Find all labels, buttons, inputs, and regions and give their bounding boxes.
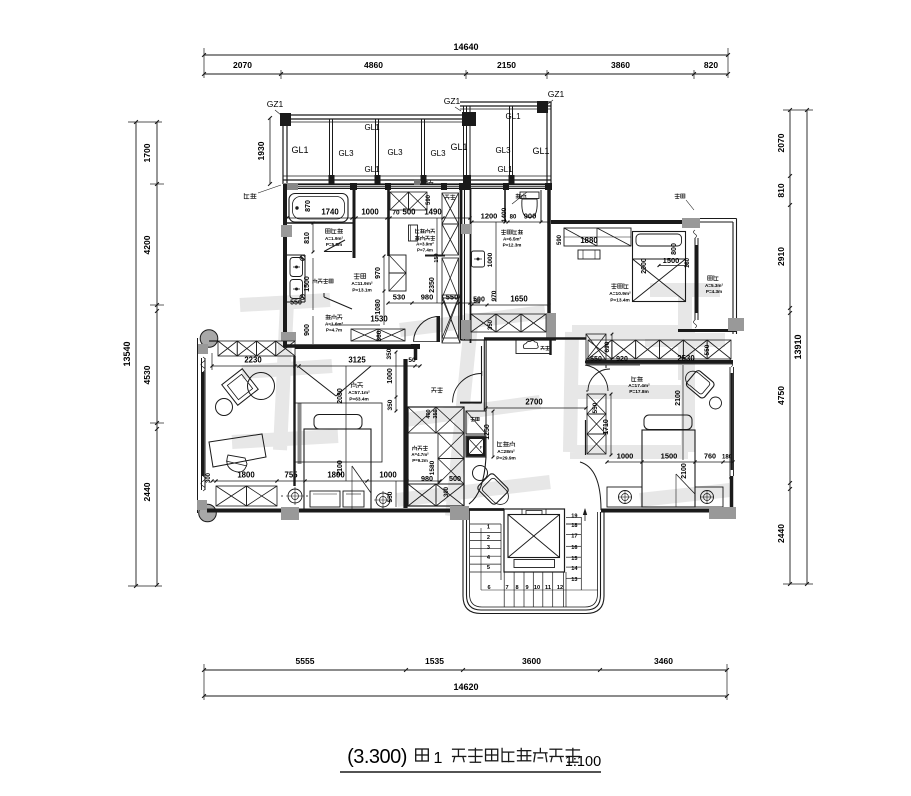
svg-text:1200: 1200 [481, 212, 498, 221]
svg-text:P=29.9m: P=29.9m [496, 456, 516, 462]
svg-text:17: 17 [571, 534, 577, 540]
svg-text:A=1.9m²: A=1.9m² [325, 236, 343, 241]
svg-text:GL1: GL1 [450, 142, 467, 152]
svg-text:2070: 2070 [776, 133, 786, 152]
svg-text:590: 590 [426, 194, 432, 205]
svg-text:19: 19 [571, 514, 577, 520]
svg-text:2350: 2350 [429, 277, 436, 293]
svg-text:14: 14 [571, 566, 578, 572]
svg-text:P=9.2m: P=9.2m [412, 458, 428, 463]
svg-text:2080: 2080 [337, 388, 344, 404]
svg-text:A=57.1m²: A=57.1m² [348, 390, 370, 396]
svg-text:GL3: GL3 [387, 148, 403, 157]
svg-text:4750: 4750 [776, 386, 786, 405]
svg-text:1530: 1530 [370, 315, 388, 324]
svg-text:2440: 2440 [142, 482, 152, 501]
svg-text:550: 550 [590, 356, 602, 363]
svg-text:A=28m²: A=28m² [497, 449, 515, 455]
svg-text:GL1: GL1 [291, 145, 308, 155]
svg-text:1000: 1000 [617, 452, 634, 461]
svg-text:1535: 1535 [425, 656, 444, 666]
svg-text:16: 16 [571, 545, 577, 551]
svg-text:P=13.4m: P=13.4m [610, 298, 630, 304]
svg-text:3125: 3125 [348, 356, 366, 365]
svg-text:2: 2 [487, 535, 490, 541]
svg-text:50: 50 [408, 357, 416, 364]
svg-text:180: 180 [685, 257, 691, 268]
svg-text:A=3.9m²: A=3.9m² [416, 242, 434, 247]
svg-text:A=1.6m²: A=1.6m² [325, 322, 343, 327]
svg-text:3860: 3860 [611, 60, 630, 70]
svg-text:GL3: GL3 [430, 149, 446, 158]
svg-text:GL3: GL3 [495, 146, 511, 155]
svg-text:8: 8 [515, 585, 518, 591]
svg-text:(3.300): (3.300) [347, 746, 407, 768]
svg-text:1:100: 1:100 [565, 754, 601, 770]
svg-text:760: 760 [704, 452, 716, 461]
svg-text:5: 5 [487, 565, 490, 571]
svg-text:1080: 1080 [375, 299, 382, 315]
svg-text:810: 810 [776, 183, 786, 197]
svg-text:1710: 1710 [603, 419, 610, 435]
svg-text:1000: 1000 [387, 368, 394, 384]
svg-text:P=13.1m: P=13.1m [352, 288, 372, 294]
svg-text:1: 1 [487, 525, 490, 531]
svg-text:1650: 1650 [510, 295, 528, 304]
svg-text:920: 920 [616, 356, 628, 363]
svg-text:13540: 13540 [122, 341, 132, 366]
svg-text:900: 900 [524, 212, 537, 221]
svg-text:970: 970 [491, 290, 498, 301]
svg-text:P=17.8m: P=17.8m [629, 389, 649, 395]
svg-text:GL1: GL1 [505, 112, 521, 121]
svg-text:550: 550 [704, 344, 711, 355]
svg-text:15: 15 [571, 556, 577, 562]
svg-text:1400: 1400 [501, 207, 508, 222]
svg-text:P=4.3m: P=4.3m [706, 289, 722, 294]
svg-text:13910: 13910 [793, 334, 803, 359]
svg-text:4860: 4860 [364, 60, 383, 70]
svg-text:1700: 1700 [142, 143, 152, 162]
svg-text:A=10.9m²: A=10.9m² [609, 291, 631, 297]
svg-text:1800: 1800 [237, 471, 255, 480]
svg-text:P=7.4m: P=7.4m [417, 248, 433, 253]
svg-text:2000: 2000 [641, 258, 648, 274]
svg-text:A=4.7m²: A=4.7m² [411, 452, 429, 457]
svg-text:A=5.3m²: A=5.3m² [705, 283, 723, 288]
svg-text:GZ1: GZ1 [444, 96, 461, 106]
svg-text:300: 300 [444, 486, 450, 497]
svg-text:14640: 14640 [453, 42, 478, 52]
svg-text:A=11.9m²: A=11.9m² [351, 281, 373, 287]
svg-text:300: 300 [206, 472, 212, 483]
svg-text:360: 360 [376, 330, 383, 341]
svg-text:1500: 1500 [663, 256, 680, 265]
svg-text:550: 550 [387, 491, 394, 502]
svg-text:2910: 2910 [776, 247, 786, 266]
svg-text:3600: 3600 [522, 656, 541, 666]
svg-text:3460: 3460 [654, 656, 673, 666]
svg-text:1580: 1580 [429, 460, 436, 475]
svg-text:GL3: GL3 [338, 149, 354, 158]
svg-text:690: 690 [604, 341, 611, 352]
svg-text:GZ1: GZ1 [267, 99, 284, 109]
svg-text:2100: 2100 [675, 390, 682, 406]
svg-text:2700: 2700 [525, 398, 543, 407]
svg-text:980: 980 [421, 293, 434, 302]
svg-text:70: 70 [392, 210, 400, 217]
svg-text:6: 6 [487, 585, 490, 591]
svg-text:2230: 2230 [244, 356, 262, 365]
svg-text:9: 9 [525, 585, 528, 591]
svg-text:80: 80 [510, 215, 517, 221]
svg-text:530: 530 [393, 293, 406, 302]
svg-text:1930: 1930 [256, 141, 266, 160]
svg-text:7: 7 [505, 585, 508, 591]
svg-text:GZ1: GZ1 [548, 89, 565, 99]
svg-text:3: 3 [487, 545, 490, 551]
svg-text:1880: 1880 [580, 236, 598, 245]
svg-text:10: 10 [534, 585, 540, 591]
svg-text:5555: 5555 [296, 656, 315, 666]
svg-text:GL1: GL1 [497, 165, 513, 174]
svg-text:P=12.3m: P=12.3m [503, 243, 522, 248]
svg-text:P=4.7m: P=4.7m [326, 328, 342, 333]
svg-text:350: 350 [433, 409, 439, 418]
svg-text:980: 980 [421, 474, 433, 483]
svg-text:900: 900 [304, 324, 311, 336]
svg-text:1740: 1740 [321, 208, 339, 217]
svg-text:970: 970 [375, 267, 382, 279]
svg-text:1: 1 [434, 750, 443, 767]
svg-text:2440: 2440 [776, 524, 786, 543]
svg-text:400: 400 [426, 409, 432, 418]
svg-text:550: 550 [290, 300, 302, 307]
svg-text:2070: 2070 [233, 60, 252, 70]
svg-text:F: F [480, 445, 483, 450]
svg-text:590: 590 [557, 234, 563, 245]
svg-text:GL1: GL1 [364, 123, 380, 132]
svg-text:A=17.4m²: A=17.4m² [628, 383, 650, 389]
svg-text:1500: 1500 [661, 452, 678, 461]
svg-text:2100: 2100 [337, 460, 344, 476]
svg-text:350: 350 [488, 319, 494, 330]
svg-text:P=63.4m: P=63.4m [349, 397, 369, 403]
svg-text:11: 11 [545, 585, 551, 591]
svg-text:810: 810 [304, 232, 311, 244]
svg-text:350: 350 [386, 348, 393, 359]
svg-text:2150: 2150 [497, 60, 516, 70]
svg-text:755: 755 [284, 471, 298, 480]
svg-text:1000: 1000 [487, 252, 494, 267]
svg-text:14620: 14620 [453, 682, 478, 692]
svg-text:GL1: GL1 [364, 165, 380, 174]
svg-text:4200: 4200 [142, 235, 152, 254]
svg-text:870: 870 [305, 200, 312, 212]
svg-text:1000: 1000 [361, 208, 379, 217]
svg-text:2100: 2100 [681, 463, 688, 479]
svg-text:GL1: GL1 [532, 146, 549, 156]
svg-text:820: 820 [704, 60, 718, 70]
svg-text:800: 800 [671, 243, 678, 255]
svg-text:13: 13 [571, 577, 577, 583]
svg-text:12: 12 [557, 585, 563, 591]
svg-text:500: 500 [449, 474, 461, 483]
svg-text:550: 550 [592, 402, 599, 413]
svg-text:4530: 4530 [142, 365, 152, 384]
svg-text:1000: 1000 [379, 471, 397, 480]
svg-text:350: 350 [387, 399, 394, 410]
svg-text:A=6.5m²: A=6.5m² [503, 237, 521, 242]
svg-text:500: 500 [473, 297, 485, 304]
